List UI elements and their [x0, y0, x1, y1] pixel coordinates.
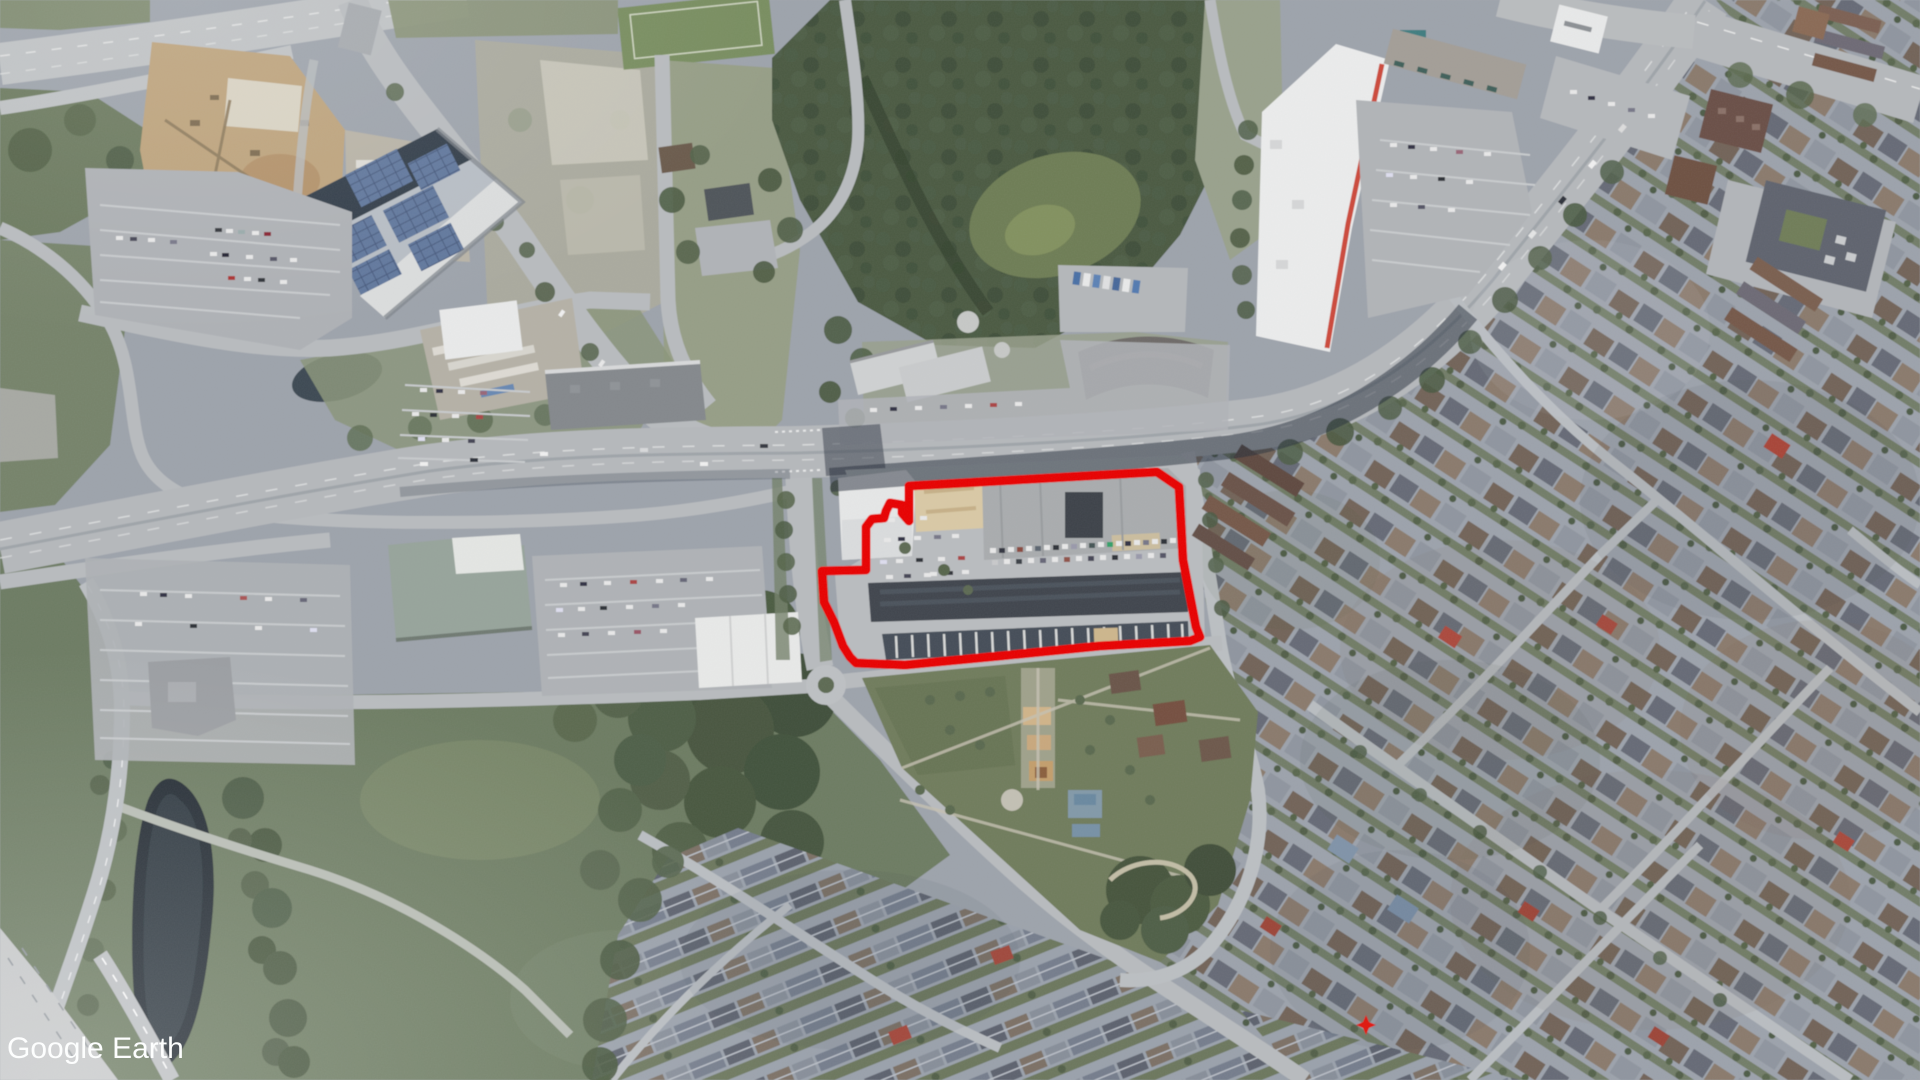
svg-text:Google Earth: Google Earth	[7, 1032, 184, 1065]
